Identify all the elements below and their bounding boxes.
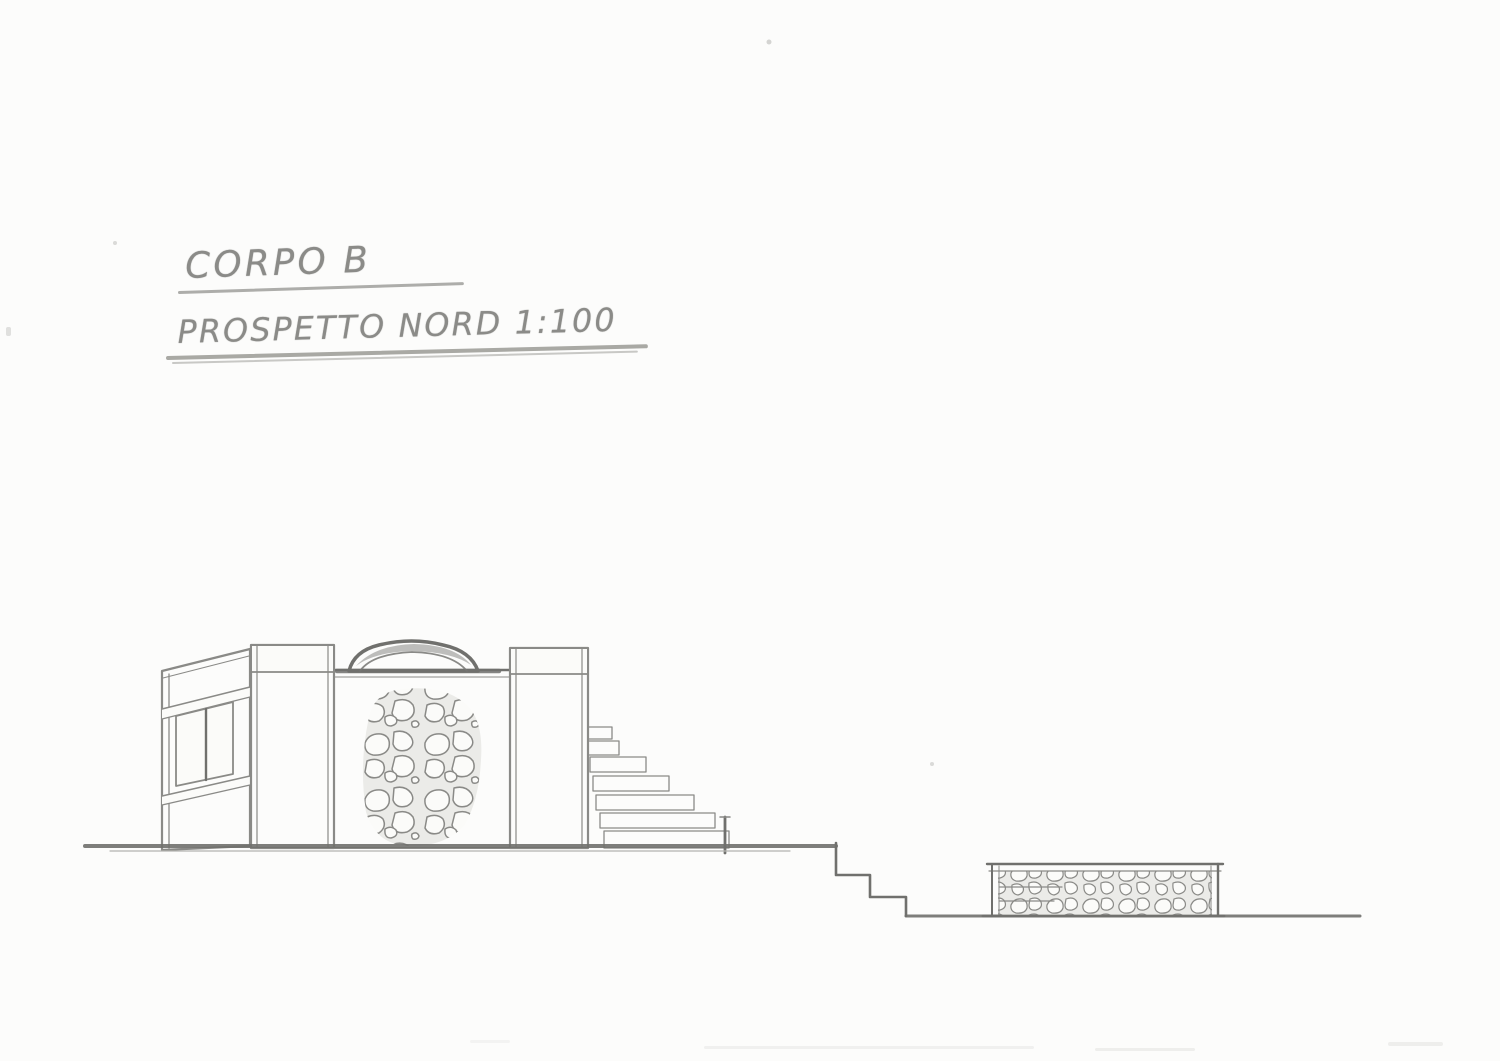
left-pillar <box>251 645 334 848</box>
pillar-top-band <box>252 646 333 672</box>
pillar-top-band <box>511 649 587 674</box>
elevation-drawing <box>0 0 1500 1061</box>
central-wall <box>334 670 510 848</box>
rubble-stone-patch <box>363 688 481 846</box>
scan-marks <box>6 40 1443 1052</box>
left-wall-panel <box>162 649 250 850</box>
scanned-drawing-page: CORPO B PROSPETTO NORD 1:100 <box>0 0 1500 1061</box>
window <box>176 702 233 786</box>
staircase <box>588 727 730 853</box>
right-pillar <box>510 648 588 848</box>
dome <box>337 641 499 671</box>
garden-wall <box>983 864 1224 916</box>
